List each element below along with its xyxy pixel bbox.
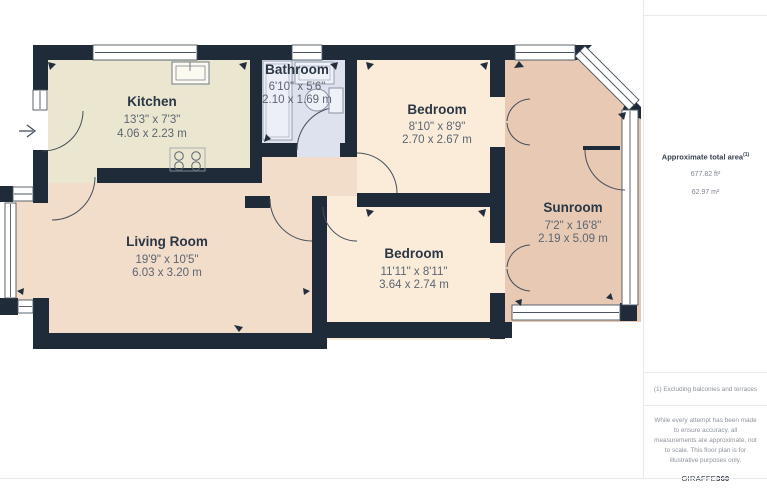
total-area-m: 62.97 m² <box>644 187 767 198</box>
sidebar-top-section <box>644 0 767 16</box>
living-room-dims-m: 6.03 x 3.20 m <box>132 267 202 279</box>
bedroom2-dims-ft: 11'11" x 8'11" <box>381 266 448 278</box>
kitchen-label: Kitchen <box>127 94 177 109</box>
bedroom1-dims-m: 2.70 x 2.67 m <box>402 134 472 146</box>
floorplan-drawing: Kitchen 13'3" x 7'3" 4.06 x 2.23 m Bathr… <box>0 0 645 492</box>
bathroom-dims-ft: 6'10" x 5'6" <box>269 81 326 93</box>
bathroom-dims-m: 2.10 x 1.69 m <box>262 94 332 106</box>
bedroom1-dims-ft: 8'10" x 8'9" <box>409 121 466 133</box>
footnote-section: (1) Excluding balconies and terraces <box>644 373 767 406</box>
bedroom2-label: Bedroom <box>384 246 443 261</box>
sunroom-dims-m: 2.19 x 5.09 m <box>538 233 608 245</box>
total-area-section: Approximate total area(1) 677.82 ft² 62.… <box>644 16 767 373</box>
disclaimer-text: While every attempt has been made to ens… <box>654 417 757 464</box>
info-sidebar: Approximate total area(1) 677.82 ft² 62.… <box>643 0 767 478</box>
kitchen-dims-ft: 13'3" x 7'3" <box>124 114 181 126</box>
page-bottom-divider <box>0 478 767 479</box>
living-room-dims-ft: 19'9" x 10'5" <box>135 254 198 266</box>
entrance-arrow-icon <box>19 125 35 137</box>
total-area-title-text: Approximate total area <box>662 153 743 162</box>
total-area-title: Approximate total area(1) <box>644 152 767 162</box>
disclaimer-section: While every attempt has been made to ens… <box>644 406 767 484</box>
floorplan-page: Kitchen 13'3" x 7'3" 4.06 x 2.23 m Bathr… <box>0 0 767 492</box>
bedroom2-dims-m: 3.64 x 2.74 m <box>379 279 449 291</box>
kitchen-dims-m: 4.06 x 2.23 m <box>117 128 187 140</box>
bathroom-label: Bathroom <box>265 62 329 77</box>
bedroom1-label: Bedroom <box>407 102 466 117</box>
sunroom-label: Sunroom <box>543 200 602 215</box>
living-room-label: Living Room <box>126 234 208 249</box>
sunroom-dims-ft: 7'2" x 16'8" <box>545 220 602 232</box>
kitchen-sink <box>172 62 209 84</box>
total-area-footnote-marker: (1) <box>743 152 749 158</box>
total-area-ft: 677.82 ft² <box>644 169 767 180</box>
